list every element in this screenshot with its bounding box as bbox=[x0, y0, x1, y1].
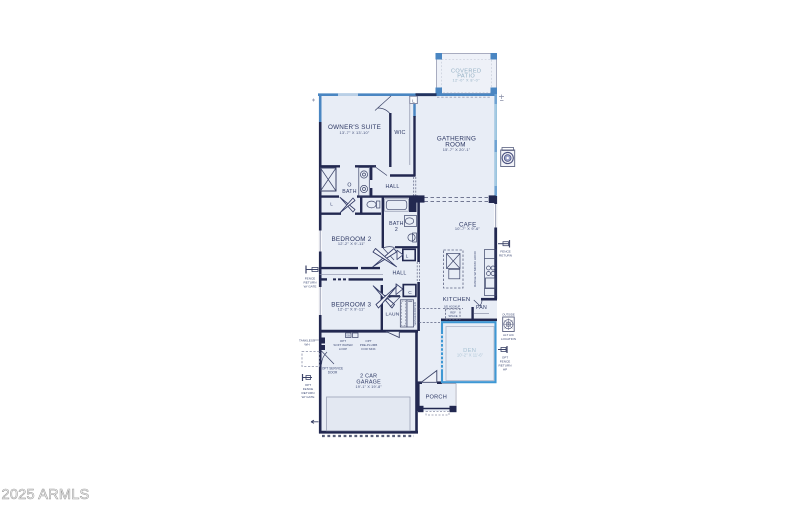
svg-text:WIC: WIC bbox=[394, 130, 405, 136]
svg-text:RETURN: RETURN bbox=[499, 254, 512, 258]
svg-text:PORCH: PORCH bbox=[426, 395, 447, 401]
svg-text:C: C bbox=[408, 290, 412, 296]
svg-text:S/D HOOKUP: S/D HOOKUP bbox=[444, 305, 461, 309]
svg-text:12'-2" X 9'-11": 12'-2" X 9'-11" bbox=[338, 307, 366, 312]
svg-text:OUTSIDE: OUTSIDE bbox=[502, 313, 515, 317]
svg-text:12'-2" X 9'-11": 12'-2" X 9'-11" bbox=[338, 241, 366, 246]
svg-text:GB: GB bbox=[346, 334, 350, 338]
svg-text:10'-7" X 9'-6": 10'-7" X 9'-6" bbox=[455, 226, 481, 231]
svg-text:LAUN: LAUN bbox=[385, 311, 399, 317]
svg-text:BATH: BATH bbox=[389, 221, 403, 227]
svg-text:HP: HP bbox=[503, 368, 507, 372]
svg-text:10'-2" X 11'-6": 10'-2" X 11'-6" bbox=[457, 353, 484, 358]
svg-text:19'-1" X 19'-8": 19'-1" X 19'-8" bbox=[356, 385, 383, 389]
svg-text:LOOP: LOOP bbox=[339, 347, 347, 351]
svg-text:WH: WH bbox=[304, 343, 309, 347]
svg-text:HALL: HALL bbox=[393, 271, 407, 277]
svg-text:KITCHEN: KITCHEN bbox=[443, 297, 471, 303]
svg-text:FOR SINK: FOR SINK bbox=[361, 347, 375, 351]
svg-text:PAN: PAN bbox=[476, 305, 487, 311]
svg-text:2: 2 bbox=[395, 227, 398, 233]
svg-text:L: L bbox=[406, 254, 409, 260]
svg-text:WASHER/DRYER: WASHER/DRYER bbox=[413, 302, 417, 325]
svg-text:W/ GATE: W/ GATE bbox=[304, 285, 317, 289]
svg-text:HALL: HALL bbox=[386, 184, 400, 190]
svg-text:SPACE: SPACE bbox=[448, 314, 457, 318]
svg-text:L: L bbox=[330, 202, 333, 207]
svg-text:RANGE W/ MICRO HOOD: RANGE W/ MICRO HOOD bbox=[473, 250, 477, 287]
svg-text:LOCATION: LOCATION bbox=[501, 337, 516, 341]
svg-text:15'-7" X 20'-1": 15'-7" X 20'-1" bbox=[443, 147, 471, 152]
svg-text:12'-0" X 8'-0": 12'-0" X 8'-0" bbox=[452, 79, 480, 83]
svg-text:13'-7" X 13'-10": 13'-7" X 13'-10" bbox=[340, 130, 370, 135]
svg-text:O: O bbox=[347, 183, 351, 189]
svg-text:2025 ARMLS: 2025 ARMLS bbox=[2, 487, 90, 503]
svg-text:BATH: BATH bbox=[342, 189, 356, 195]
svg-text:W/ GATE: W/ GATE bbox=[302, 395, 315, 399]
svg-text:DOOR: DOOR bbox=[328, 371, 338, 375]
